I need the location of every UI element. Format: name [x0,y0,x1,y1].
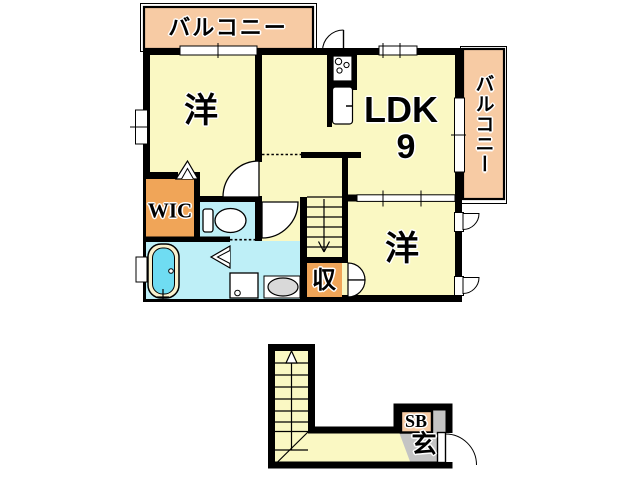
bedroom-right-window-1 [455,213,464,232]
bedroom-left-label: 洋 [184,94,218,128]
bedroom-right-label: 洋 [385,232,419,266]
ldk-top-window [379,46,417,55]
bathtub-icon [148,244,179,299]
balcony-top-label: バルコニー [168,17,288,39]
toilet-icon [203,209,246,233]
wic-label: WIC [148,201,192,222]
ldk-label: LDK [364,92,438,128]
kitchen-service-door-icon [323,30,344,51]
second-floor [130,4,507,300]
floor-plan: バルコニー バルコニー 洋 LDK 9 WIC 収 洋 SB 玄 [0,0,640,480]
casement-swing-icon [463,278,479,294]
floor-plan-drawing [0,0,640,480]
partition-wall-stub [346,195,358,202]
entrance-door-icon [438,433,477,466]
storage-label: 収 [312,269,336,293]
balcony-right-label: バルコニー [474,74,493,174]
bedroom-right-window-2 [455,277,464,296]
bathroom-window [136,257,147,282]
casement-swing-icon [463,214,479,230]
entrance-label: 玄 [411,433,436,458]
washing-machine-icon [230,273,258,298]
kitchen-unit [327,52,357,127]
first-floor [272,348,477,466]
ldk-size-label: 9 [397,130,416,164]
washroom-sink-icon [264,276,300,298]
partition-window [357,195,455,202]
shoebox-label: SB [405,412,427,430]
